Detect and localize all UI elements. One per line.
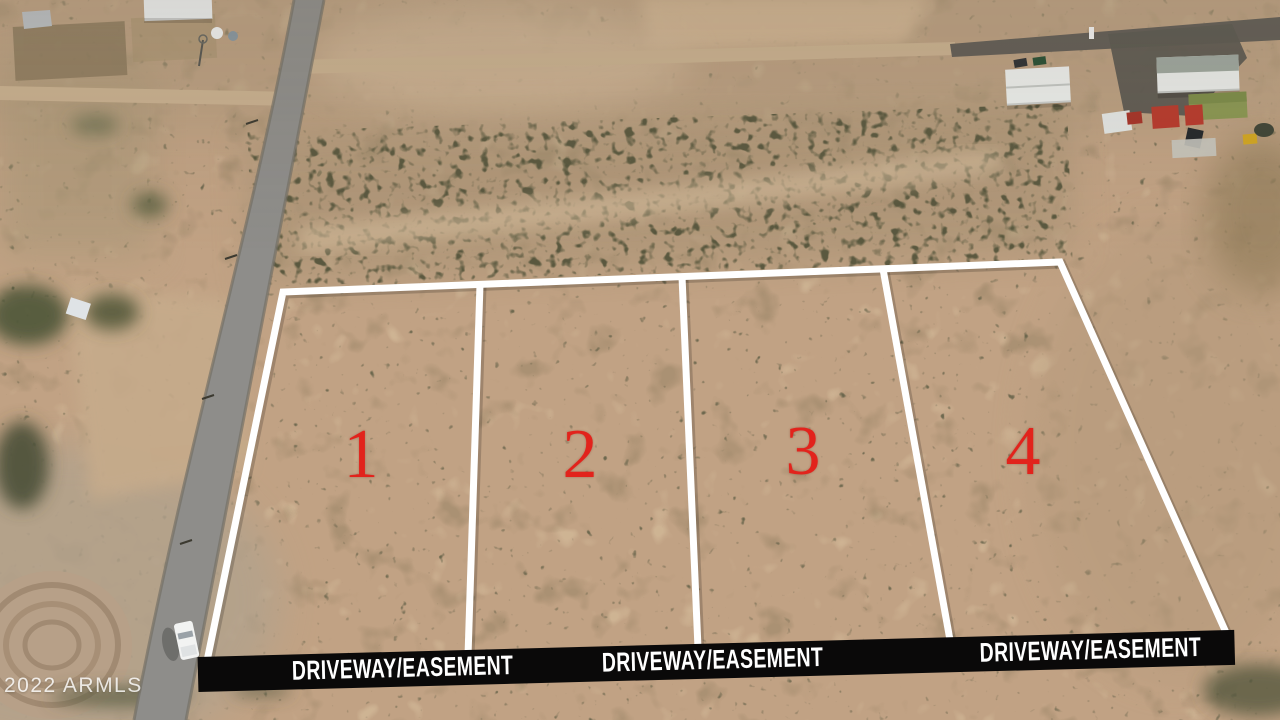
lot-number-1: 1 (344, 420, 379, 490)
lot-divider-3-4 (883, 269, 950, 640)
easement-label-2: DRIVEWAY/EASEMENT (601, 641, 823, 678)
lot-number-3: 3 (786, 417, 821, 487)
aerial-photo: 1 2 3 4 DRIVEWAY/EASEMENT DRIVEWAY/EASEM… (0, 0, 1280, 720)
armls-watermark: 2022 ARMLS (4, 674, 143, 698)
easement-label-3: DRIVEWAY/EASEMENT (979, 631, 1201, 668)
lot-number-4: 4 (1006, 417, 1041, 487)
lot-number-2: 2 (563, 420, 598, 490)
lot-boundary-lines (0, 0, 1280, 720)
easement-label-1: DRIVEWAY/EASEMENT (292, 650, 514, 687)
